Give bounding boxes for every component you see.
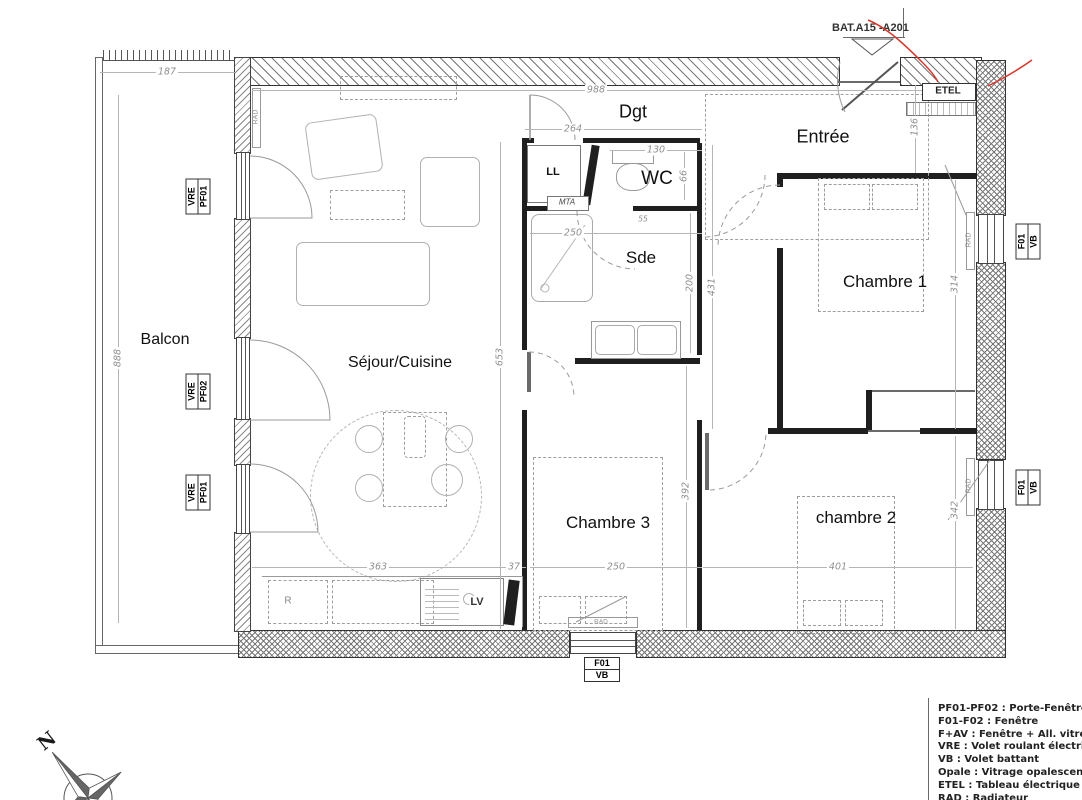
compass-rose: N O: [0, 708, 147, 800]
legend-line: ETEL : Tableau électrique: [938, 780, 1082, 793]
dimension: 66: [679, 168, 690, 184]
tag-f01: F01: [585, 658, 619, 669]
door-arc: [838, 62, 845, 112]
door-arc: [577, 211, 635, 269]
shower-drain: [541, 284, 549, 292]
dimension-line: [525, 129, 702, 130]
door-leaf: [842, 62, 898, 110]
tag-vb: VB: [1028, 471, 1040, 505]
door-arc: [250, 156, 312, 218]
compass-north-label: N: [33, 727, 60, 755]
label-mta: MTA: [559, 198, 575, 207]
legend: PF01-PF02 : Porte-Fenêtre F01-F02 : Fenê…: [938, 703, 1082, 800]
dimension: 392: [681, 480, 692, 502]
annotation-triangle: [852, 39, 893, 55]
dimension: 250: [605, 562, 627, 573]
tag-f01-vb: F01 VB: [1016, 470, 1041, 506]
label-rad: RAD: [594, 619, 608, 626]
label-etel: ETEL: [935, 86, 961, 97]
dimension: 187: [156, 67, 178, 78]
tag-pf02: PF02: [198, 375, 210, 409]
dimension-line: [500, 142, 501, 629]
tag-vre: VRE: [187, 476, 198, 510]
tag-vre: VRE: [187, 375, 198, 409]
dimension: 37: [506, 562, 522, 573]
tag-pf01: PF01: [198, 476, 210, 510]
door-arc: [250, 340, 330, 420]
dimension: 988: [585, 85, 607, 96]
dimension-line: [955, 180, 956, 429]
dimension: 136: [910, 116, 921, 138]
tag-pf02-vre: VRE PF02: [186, 374, 211, 410]
tag-pf01-vre: VRE PF01: [186, 179, 211, 215]
tag-pf01: PF01: [198, 180, 210, 214]
legend-line: RAD : Radiateur: [938, 793, 1082, 800]
floor-plan: 187 988 264 130 66 55 250 200 431 136 31…: [0, 0, 1082, 800]
tag-vre: VRE: [187, 180, 198, 214]
dimension-line: [955, 436, 956, 629]
dimension: 55: [636, 215, 650, 224]
tag-vb: VB: [585, 669, 619, 681]
red-revision-mark: [988, 60, 1032, 86]
legend-line: VB : Volet battant: [938, 754, 1082, 767]
legend-line: VRE : Volet roulant électrique: [938, 741, 1082, 754]
tag-f01-vb: F01 VB: [1016, 224, 1041, 260]
dimension: 250: [562, 228, 584, 239]
door-arc: [250, 464, 318, 532]
tag-pf01-vre: VRE PF01: [186, 475, 211, 511]
legend-line: F01-F02 : Fenêtre: [938, 716, 1082, 729]
legend-line: F+AV : Fenêtre + All. vitrée: [938, 729, 1082, 742]
door-arc: [710, 433, 766, 490]
dimension: 888: [113, 347, 124, 369]
legend-divider: [928, 698, 929, 800]
dimension: 431: [707, 276, 718, 298]
dimension: 130: [645, 145, 667, 156]
dimension: 264: [562, 124, 584, 135]
legend-line: PF01-PF02 : Porte-Fenêtre: [938, 703, 1082, 716]
red-revision-mark: [868, 20, 938, 82]
tag-f01: F01: [1017, 225, 1028, 259]
dimension: 363: [367, 562, 389, 573]
dimension: 653: [495, 346, 506, 368]
tag-vb: VB: [1028, 225, 1040, 259]
dimension: 342: [950, 499, 961, 521]
legend-line: Opale : Vitrage opalescent: [938, 767, 1082, 780]
door-arc: [529, 352, 574, 397]
tag-f01: F01: [1017, 471, 1028, 505]
tag-f01-vb: F01 VB: [584, 657, 620, 682]
dimension: 401: [827, 562, 849, 573]
dimension: 314: [950, 273, 961, 295]
dimension-line: [530, 233, 702, 234]
dimension: 200: [685, 272, 696, 294]
